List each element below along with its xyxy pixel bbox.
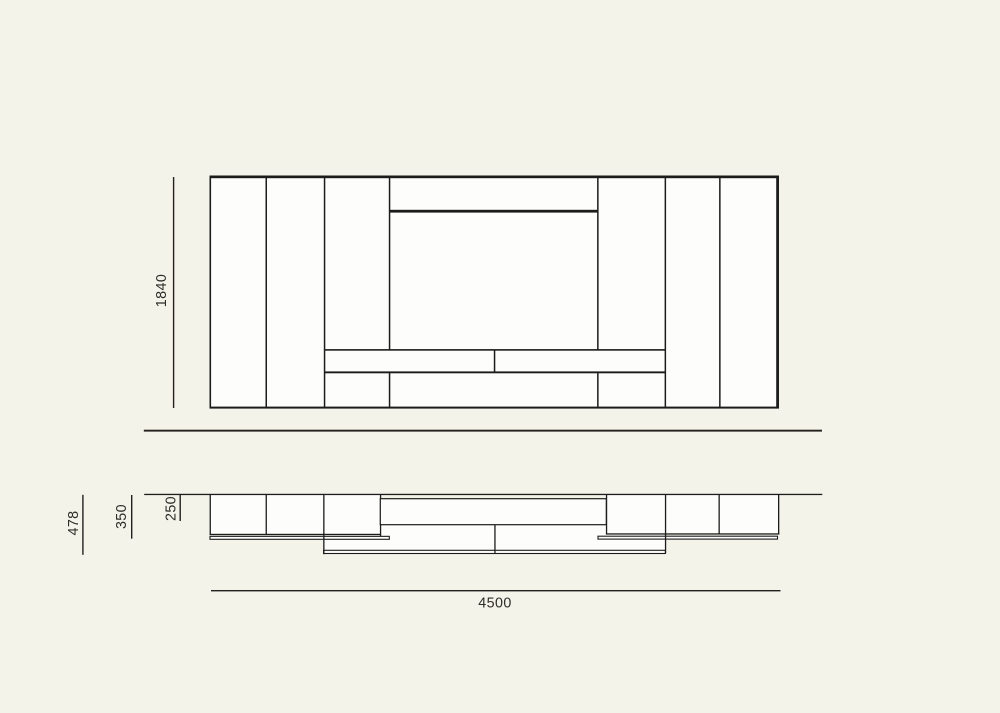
svg-text:250: 250 — [164, 496, 180, 521]
svg-text:350: 350 — [114, 504, 130, 529]
svg-text:478: 478 — [66, 510, 82, 535]
svg-text:1840: 1840 — [154, 274, 170, 307]
svg-text:4500: 4500 — [478, 596, 511, 612]
